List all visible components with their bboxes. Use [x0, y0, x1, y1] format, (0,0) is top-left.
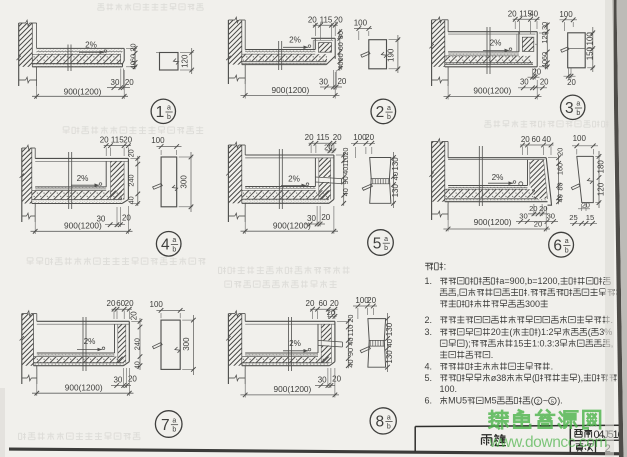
svg-text:30: 30 [547, 212, 555, 221]
svg-text:a: a [387, 414, 391, 421]
svg-text:20: 20 [346, 315, 355, 323]
svg-text:20: 20 [567, 78, 576, 87]
svg-text:5: 5 [551, 400, 554, 406]
svg-text:a: a [172, 417, 176, 424]
svg-text:110: 110 [346, 325, 355, 337]
svg-text:2.: 2. [425, 315, 433, 325]
svg-text:115: 115 [317, 133, 330, 142]
svg-text:40: 40 [346, 337, 355, 345]
svg-text:1.: 1. [425, 276, 433, 286]
svg-text:20: 20 [324, 142, 332, 151]
svg-text:100: 100 [573, 134, 587, 143]
svg-text:),: ), [578, 373, 584, 383]
svg-text:2%: 2% [85, 41, 97, 50]
svg-text:30: 30 [113, 375, 122, 384]
svg-text:a: a [167, 105, 171, 112]
svg-text:40: 40 [346, 359, 355, 367]
svg-text:a=900,b=1200,: a=900,b=1200, [499, 276, 560, 286]
svg-text:a: a [387, 105, 391, 112]
svg-text:2%: 2% [77, 174, 89, 183]
svg-text:~: ~ [543, 396, 548, 406]
svg-text:15: 15 [513, 338, 523, 348]
svg-text:20: 20 [128, 43, 137, 51]
svg-text:150: 150 [585, 46, 594, 60]
svg-text:20: 20 [306, 299, 315, 308]
svg-text:20: 20 [534, 220, 542, 229]
svg-text:).: ). [557, 396, 563, 406]
svg-text:2%: 2% [84, 337, 96, 346]
svg-text:900(1200): 900(1200) [273, 384, 311, 394]
svg-text:15: 15 [586, 213, 594, 222]
svg-text:30: 30 [520, 78, 529, 87]
svg-text:900(1200): 900(1200) [65, 383, 103, 393]
svg-text:300: 300 [182, 337, 191, 351]
svg-text:b: b [565, 247, 569, 254]
svg-text:b: b [576, 110, 580, 117]
svg-text:20: 20 [365, 133, 374, 142]
svg-text:a: a [565, 238, 569, 245]
svg-text:20: 20 [529, 204, 537, 213]
svg-text:20: 20 [126, 149, 135, 157]
svg-text:20: 20 [107, 299, 116, 308]
svg-text:20: 20 [556, 148, 565, 156]
svg-text:20: 20 [308, 16, 317, 25]
svg-text:100: 100 [354, 18, 368, 27]
svg-text:www.downcc.com: www.downcc.com [489, 434, 608, 451]
svg-text:110: 110 [341, 155, 350, 167]
svg-text:60: 60 [336, 42, 345, 50]
svg-text:20: 20 [327, 308, 335, 317]
svg-text:20: 20 [123, 135, 132, 144]
svg-text:5: 5 [373, 235, 382, 252]
svg-text:30: 30 [336, 31, 345, 39]
svg-text:20: 20 [367, 296, 376, 305]
svg-text:8: 8 [375, 414, 384, 431]
svg-text:100: 100 [151, 136, 165, 145]
svg-text:(: ( [532, 373, 535, 383]
svg-text:20: 20 [582, 200, 590, 209]
svg-text:900(1200): 900(1200) [64, 221, 102, 231]
svg-text:2: 2 [537, 400, 540, 406]
svg-text::: : [444, 262, 447, 273]
svg-text:130: 130 [385, 350, 394, 364]
svg-text:900(1200): 900(1200) [273, 220, 311, 230]
svg-text:,: , [457, 287, 460, 297]
svg-text:2%: 2% [289, 36, 301, 45]
svg-text:115: 115 [111, 135, 124, 144]
svg-text:20: 20 [508, 10, 517, 19]
svg-text:900(1200): 900(1200) [474, 217, 512, 227]
svg-text:1:0.3:3: 1:0.3:3 [532, 338, 560, 348]
svg-text:40: 40 [133, 361, 142, 369]
svg-text:30: 30 [319, 78, 328, 87]
svg-text:b: b [172, 427, 176, 434]
svg-text:7: 7 [161, 417, 170, 434]
svg-text:4.: 4. [425, 361, 433, 371]
svg-text:30: 30 [111, 78, 120, 87]
svg-text:2%: 2% [289, 339, 301, 348]
svg-text:40: 40 [529, 10, 538, 19]
svg-text:(: ( [509, 327, 512, 337]
svg-text:3.: 3. [425, 327, 433, 337]
svg-text:40: 40 [341, 188, 350, 196]
svg-text:.: . [551, 361, 554, 371]
svg-text:a: a [576, 101, 580, 108]
svg-text:20: 20 [332, 375, 341, 384]
svg-text:160: 160 [556, 163, 565, 175]
svg-text:4: 4 [161, 237, 170, 254]
svg-text:40: 40 [336, 62, 345, 70]
svg-text:40: 40 [385, 339, 394, 347]
svg-text:20: 20 [122, 214, 131, 223]
svg-text:b: b [172, 246, 176, 253]
svg-text:20: 20 [334, 16, 343, 25]
svg-text:130: 130 [391, 183, 400, 197]
svg-text:20: 20 [341, 148, 350, 156]
svg-text:900(1200): 900(1200) [473, 86, 511, 96]
svg-text:.: . [491, 350, 494, 360]
svg-text:90: 90 [341, 176, 350, 184]
svg-text:100: 100 [559, 10, 573, 19]
svg-text:900(1200): 900(1200) [271, 85, 309, 95]
svg-text:)1:2: )1:2 [538, 327, 554, 337]
svg-text:MU5: MU5 [448, 396, 467, 406]
svg-text:20: 20 [330, 299, 339, 308]
svg-text:180: 180 [596, 160, 605, 174]
svg-text:2%: 2% [492, 173, 504, 182]
svg-text:90: 90 [346, 348, 355, 356]
svg-text:40: 40 [128, 61, 137, 69]
svg-text:M5: M5 [484, 396, 497, 406]
svg-text:6.: 6. [425, 396, 433, 406]
svg-text:60: 60 [336, 53, 345, 61]
svg-text:240: 240 [126, 174, 135, 186]
svg-text:20: 20 [540, 77, 549, 86]
svg-text:20: 20 [521, 135, 530, 144]
svg-text:20: 20 [337, 77, 346, 86]
svg-text:30: 30 [519, 212, 527, 221]
svg-text:900(1200): 900(1200) [64, 87, 102, 97]
svg-text:130: 130 [385, 322, 394, 336]
svg-text:20: 20 [125, 78, 134, 87]
svg-text:130: 130 [391, 157, 400, 171]
svg-text:5.: 5. [425, 373, 433, 383]
svg-text:40: 40 [341, 167, 350, 175]
svg-text:120: 120 [540, 31, 549, 43]
svg-text:20: 20 [333, 133, 342, 142]
svg-text:300: 300 [525, 299, 540, 309]
svg-text:20: 20 [491, 327, 501, 337]
svg-text:40: 40 [126, 196, 135, 204]
svg-text:300: 300 [180, 175, 189, 189]
svg-text:115: 115 [320, 16, 333, 25]
svg-text:120: 120 [180, 54, 189, 68]
svg-text:40: 40 [540, 60, 549, 68]
svg-text:20: 20 [532, 68, 541, 77]
svg-text:100: 100 [150, 300, 164, 309]
svg-text:30: 30 [540, 22, 549, 30]
svg-text:240: 240 [133, 338, 142, 350]
svg-text:30: 30 [318, 375, 327, 384]
svg-text:a: a [384, 236, 388, 243]
svg-text:40: 40 [542, 135, 551, 144]
svg-text:100: 100 [585, 32, 594, 46]
svg-text:ø38: ø38 [491, 373, 507, 383]
svg-text:20: 20 [129, 311, 138, 320]
svg-text:60: 60 [532, 135, 541, 144]
svg-text:);: ); [465, 338, 471, 348]
svg-text:2%: 2% [490, 39, 502, 48]
svg-text:20: 20 [305, 133, 314, 142]
svg-text:25: 25 [569, 213, 577, 222]
svg-text:190: 190 [387, 48, 396, 62]
svg-text:a: a [172, 237, 176, 244]
svg-text:40: 40 [391, 172, 400, 180]
svg-text:(: ( [588, 327, 591, 337]
svg-text:b: b [384, 245, 388, 252]
svg-text:2%: 2% [288, 175, 300, 184]
svg-text:b: b [387, 424, 391, 431]
svg-text:40: 40 [556, 194, 565, 202]
svg-text:120: 120 [596, 182, 605, 196]
svg-text:20: 20 [125, 299, 134, 308]
svg-text:(: ( [531, 396, 534, 406]
svg-text:2: 2 [376, 104, 385, 121]
svg-text:100.: 100. [440, 384, 458, 394]
svg-text:60: 60 [540, 52, 549, 60]
svg-text:.: . [528, 287, 531, 297]
svg-text:20: 20 [321, 213, 330, 222]
svg-text:60: 60 [318, 299, 327, 308]
svg-text:80: 80 [556, 182, 565, 190]
svg-text:3: 3 [565, 100, 574, 117]
svg-text:6: 6 [553, 238, 562, 255]
svg-text:60: 60 [128, 54, 137, 62]
svg-text:b: b [387, 114, 391, 121]
svg-text:1: 1 [156, 104, 165, 121]
svg-text:20: 20 [100, 135, 109, 144]
svg-text:b: b [167, 114, 171, 121]
